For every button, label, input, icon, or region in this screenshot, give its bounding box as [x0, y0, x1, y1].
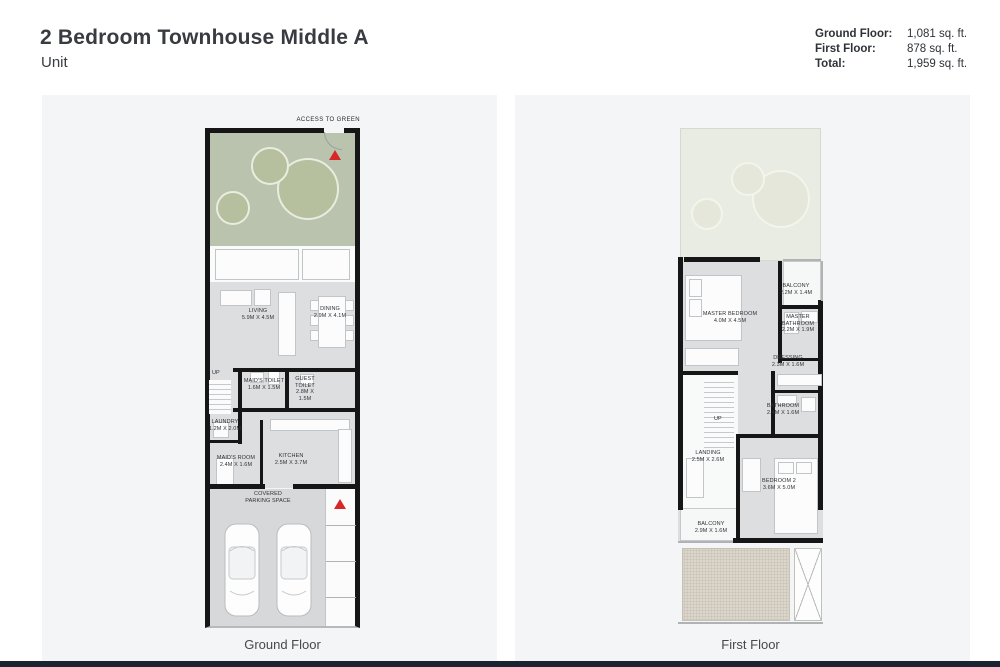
sofa [686, 458, 704, 498]
wall [233, 368, 355, 372]
walkway-step [326, 561, 356, 562]
wall [736, 434, 740, 538]
first-floor-plan: UP [678, 128, 823, 628]
sofa [220, 290, 252, 306]
first-floor-panel: UP [515, 95, 970, 661]
tree-icon [251, 147, 289, 185]
tree-icon [691, 198, 723, 230]
wall [208, 440, 241, 443]
wall [780, 305, 823, 309]
room-label-balcony-top: BALCONY2.2M X 1.4M [776, 283, 816, 296]
access-to-green-label: ACCESS TO GREEN [297, 117, 360, 123]
room-label-dressing: DRESSING2.3M X 1.6M [766, 355, 810, 368]
railing [821, 261, 823, 301]
entry-arrow-icon [334, 499, 346, 509]
stairs [209, 380, 231, 414]
room-label-maids-room: MAID'S ROOM2.4M X 1.6M [211, 455, 261, 468]
room-label-guest-toilet: GUEST TOILET2.8M X 1.5M [290, 376, 320, 403]
terrace-step [302, 249, 350, 280]
wall [260, 420, 263, 486]
room-label-living: LIVING5.9M X 4.5M [228, 308, 288, 321]
pillow [689, 279, 702, 297]
dining-chair [310, 330, 319, 341]
wall [738, 434, 823, 438]
room-label-master-bathroom: MASTER BATHROOM2.2M X 1.9M [778, 314, 818, 334]
room-label-master-bedroom: MASTER BEDROOM4.0M X 4.5M [698, 311, 762, 324]
up-label: UP [212, 370, 220, 376]
walkway-step [326, 597, 356, 598]
area-value-total: 1,959 sq. ft. [907, 57, 967, 71]
ground-floor-panel: ACCESS TO GREEN [42, 95, 497, 661]
page-subtitle: Unit [41, 54, 68, 71]
room-label-maids-toilet: MAID'S TOILET1.6M X 1.5M [242, 378, 286, 391]
area-label-total: Total: [815, 57, 907, 71]
caption-first-floor: First Floor [678, 637, 823, 652]
walkway-step [326, 525, 356, 526]
kitchen-counter [338, 429, 352, 483]
room-label-bedroom2: BEDROOM 23.6M X 5.0M [755, 478, 803, 491]
wall [818, 300, 823, 510]
wall [733, 538, 823, 543]
wall [778, 261, 782, 363]
room-label-landing: LANDING2.5M X 2.6M [686, 450, 730, 463]
wall [678, 257, 683, 510]
area-summary: Ground Floor: 1,081 sq. ft. First Floor:… [815, 27, 967, 71]
wardrobe [685, 348, 739, 366]
garden-area-faded [680, 128, 821, 261]
entry-arrow-icon [329, 150, 341, 160]
pillow [778, 462, 794, 474]
tv-unit [278, 292, 296, 356]
parking-area [205, 489, 360, 628]
wall [684, 257, 760, 262]
wall [233, 408, 355, 412]
tree-icon [731, 162, 765, 196]
plan-bottom-line [678, 622, 823, 624]
car-icon [222, 521, 262, 619]
area-value-first: 878 sq. ft. [907, 42, 967, 56]
railing [783, 259, 821, 261]
tree-icon [216, 191, 250, 225]
room-label-laundry: LAUNDRY1.2M X 2.0M [208, 419, 242, 432]
dressing-wardrobe [777, 374, 822, 386]
area-value-ground: 1,081 sq. ft. [907, 27, 967, 41]
roof-terrace-texture [682, 548, 790, 621]
railing [678, 541, 733, 543]
up-label: UP [714, 416, 722, 422]
ground-floor-plan: ACCESS TO GREEN [205, 128, 360, 628]
room-label-parking: COVERED PARKING SPACE [242, 491, 294, 504]
terrace-deck [215, 249, 299, 280]
terrace-strip [205, 246, 360, 282]
car-icon [274, 521, 314, 619]
area-label-first: First Floor: [815, 42, 907, 56]
room-label-dining: DINING2.9M X 4.1M [308, 306, 352, 319]
armchair [254, 289, 271, 306]
pillow [796, 462, 812, 474]
void-skylight [794, 548, 822, 621]
caption-ground-floor: Ground Floor [205, 637, 360, 652]
wall [773, 390, 823, 393]
room-label-balcony-bottom: BALCONY2.9M X 1.6M [689, 521, 733, 534]
room-label-kitchen: KITCHEN2.5M X 3.7M [266, 453, 316, 466]
room-label-bathroom: BATHROOM2.4M X 1.6M [761, 403, 805, 416]
dining-table [318, 296, 346, 348]
wall [678, 371, 738, 375]
entry-walkway [325, 489, 355, 626]
stairs [704, 378, 734, 448]
floorplan-page: 2 Bedroom Townhouse Middle A Unit Ground… [0, 0, 1000, 667]
page-title: 2 Bedroom Townhouse Middle A [40, 26, 369, 50]
area-label-ground: Ground Floor: [815, 27, 907, 41]
dining-chair [345, 330, 354, 341]
bottom-bar [0, 661, 1000, 667]
